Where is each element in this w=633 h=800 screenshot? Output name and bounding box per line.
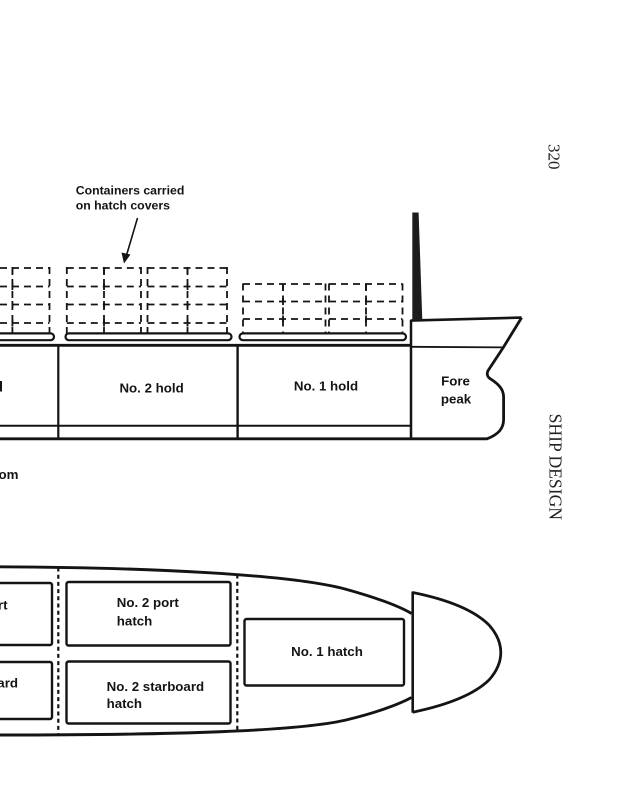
svg-text:ard: ard (0, 676, 18, 691)
svg-text:on hatch covers: on hatch covers (76, 198, 170, 212)
svg-text:No. 1 hatch: No. 1 hatch (291, 644, 363, 659)
svg-text:No. 1 hold: No. 1 hold (294, 379, 358, 394)
svg-text:320: 320 (544, 144, 563, 170)
svg-text:peak: peak (441, 392, 472, 407)
svg-text:No. 2 starboard: No. 2 starboard (107, 679, 205, 694)
svg-text:om: om (0, 467, 19, 482)
svg-text:No. 2 port: No. 2 port (117, 595, 180, 610)
svg-text:hatch: hatch (117, 614, 152, 629)
svg-text:hatch: hatch (107, 696, 142, 711)
svg-text:Containers carried: Containers carried (76, 183, 185, 197)
svg-text:SHIP DESIGN: SHIP DESIGN (545, 414, 565, 521)
svg-text:No. 2 hold: No. 2 hold (119, 381, 183, 396)
svg-text:rt: rt (0, 598, 8, 613)
svg-text:Fore: Fore (441, 374, 470, 389)
